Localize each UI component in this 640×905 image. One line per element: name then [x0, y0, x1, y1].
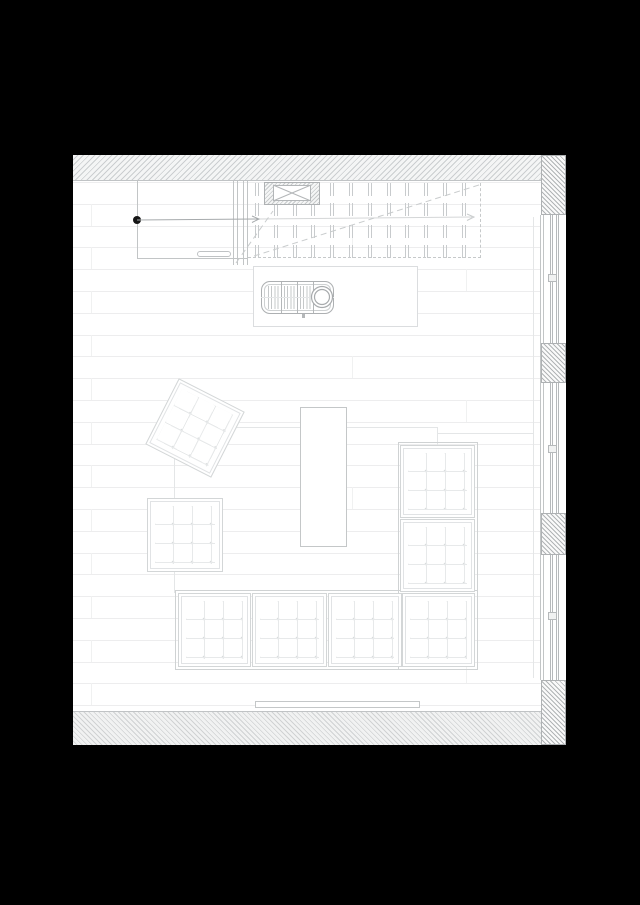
- annotation-overlay: [73, 155, 566, 745]
- floor-plan-sheet: [73, 155, 566, 745]
- floor-plan-page: [0, 0, 640, 905]
- stair-up-arrow-line-faint: [258, 217, 472, 219]
- stair-up-arrow-line: [137, 219, 258, 220]
